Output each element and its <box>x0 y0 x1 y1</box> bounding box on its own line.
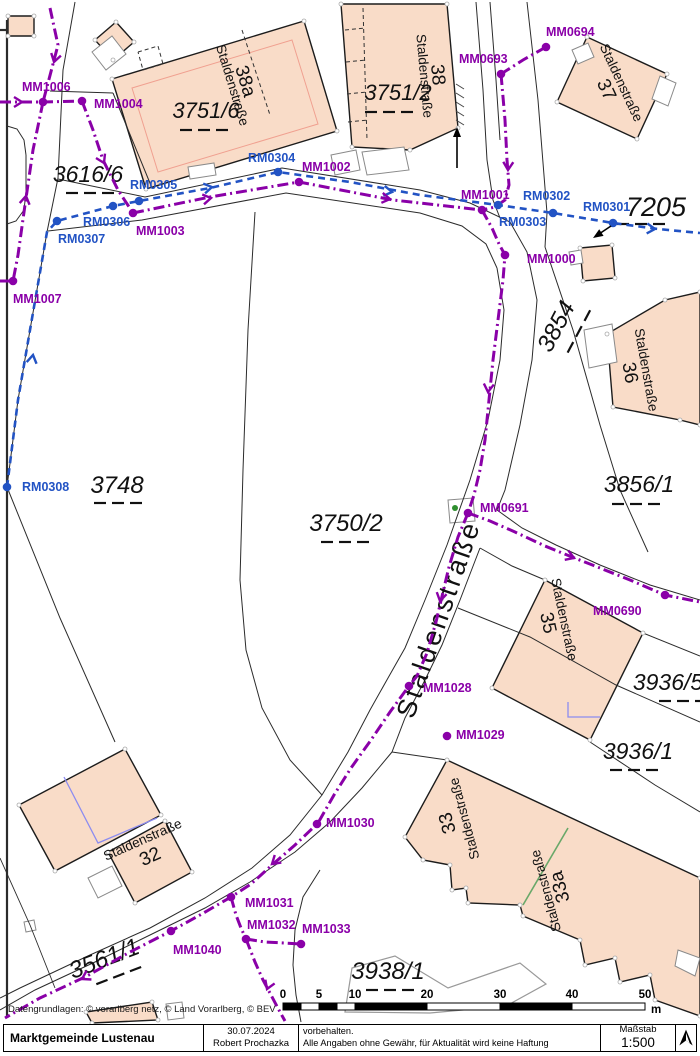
vertex-point <box>613 276 617 280</box>
building-top-corner <box>8 16 34 36</box>
parcel-dash-mark <box>130 967 141 971</box>
parcel-dash-mark <box>576 326 582 337</box>
green-point <box>452 505 458 511</box>
vertex-point <box>114 20 118 24</box>
white-structure <box>88 866 122 898</box>
mm-point <box>242 935 251 944</box>
parcel-number-label: 7205 <box>626 192 687 222</box>
mm-point <box>78 97 87 106</box>
footer-north <box>676 1025 696 1051</box>
parcel-dash-mark <box>96 980 107 984</box>
black-arrow-head <box>591 229 604 241</box>
parcel-dash-mark <box>113 973 124 977</box>
vertex-point <box>450 888 454 892</box>
vertex-point <box>648 973 652 977</box>
direction-arrow-icon <box>483 384 494 393</box>
vertex-point <box>190 870 194 874</box>
direction-arrow-icon <box>27 354 38 364</box>
fence-tick <box>456 93 464 98</box>
mm-point <box>227 893 236 902</box>
data-sources-attribution: Datengrundlagen: © vorarlberg netz, © La… <box>8 1004 276 1015</box>
parcel-boundary-line <box>7 178 58 487</box>
scale-bar-segment <box>337 1003 355 1010</box>
scale-tick-label: 50 <box>639 989 652 1001</box>
vertex-point <box>156 1018 160 1022</box>
vertex-point <box>110 77 114 81</box>
parcel-boundary-line <box>58 168 510 222</box>
rm-point-label: RM0303 <box>499 215 546 229</box>
vertex-point <box>578 246 582 250</box>
vertex-point <box>159 813 163 817</box>
footer-scale: Maßstab 1:500 <box>601 1025 676 1051</box>
mm-point <box>405 682 414 691</box>
mm-point-label: MM1033 <box>302 922 351 936</box>
scale-bar-segment <box>572 1003 645 1010</box>
mm-point-label: MM1000 <box>527 252 576 266</box>
mm-point-label: MM1032 <box>247 918 296 932</box>
parcel-dash-mark <box>568 342 574 353</box>
vertex-point <box>408 148 412 152</box>
vertex-point <box>464 886 468 890</box>
mm-point-label: MM0691 <box>480 501 529 515</box>
parcel-boundary-line <box>643 633 700 656</box>
mm-point <box>501 251 510 260</box>
vertex-point <box>350 145 354 149</box>
vertex-point <box>17 803 21 807</box>
parcel-boundary-line <box>7 487 115 742</box>
rm-point-label: RM0304 <box>248 151 295 165</box>
mm-point-label: MM0693 <box>459 52 508 66</box>
rm-point <box>135 197 144 206</box>
mm-point <box>297 940 306 949</box>
building-number-label: 38 <box>426 63 449 86</box>
north-arrow-icon <box>676 1028 696 1048</box>
vertex-point <box>543 578 547 582</box>
scale-tick-label: 20 <box>421 989 434 1001</box>
vertex-point <box>93 38 97 42</box>
mm-point <box>478 206 487 215</box>
footer-date-author: 30.07.2024 Robert Prochazka <box>204 1025 299 1051</box>
parcel-number-label: 3561/1 <box>65 933 143 985</box>
vertex-point <box>653 998 657 1002</box>
parcel-number-label: 3936/5 <box>633 669 700 695</box>
parcel-number-label: 3936/1 <box>603 738 673 764</box>
mm-traverse-line <box>13 102 43 281</box>
parcel-number-label: 3616/6 <box>53 161 124 187</box>
vertex-point <box>583 963 587 967</box>
mm-point-label: MM1028 <box>423 681 472 695</box>
fence-tick <box>456 84 464 89</box>
vertex-point <box>132 40 136 44</box>
parcel-boundary-line <box>480 548 545 580</box>
rm-point <box>3 483 12 492</box>
scale-bar-segment <box>283 1003 301 1010</box>
parcel-dash-mark <box>585 310 591 321</box>
white-structure <box>362 147 409 175</box>
parcel-boundary-line <box>7 126 26 155</box>
mm-point-label: MM0690 <box>593 604 642 618</box>
disclaimer-line1: Nicht rechtsverbindlicher Ausdruck. Druc… <box>303 1025 600 1038</box>
building-mm1000 <box>580 245 615 281</box>
parcel-number-label: 3938/1 <box>351 958 424 985</box>
vertex-point <box>663 298 667 302</box>
vertex-point <box>610 243 614 247</box>
municipality-label: Marktgemeinde Lustenau <box>10 1031 203 1045</box>
print-date: 30.07.2024 <box>204 1026 298 1038</box>
vertex-point <box>578 938 582 942</box>
parcel-number-label: 3750/2 <box>309 510 382 537</box>
vertex-point <box>588 738 592 742</box>
vertex-point <box>445 758 449 762</box>
rm-point-label: RM0308 <box>22 480 69 494</box>
vertex-point <box>6 34 10 38</box>
vertex-point <box>421 858 425 862</box>
parcel-boundary-line <box>392 752 447 760</box>
vertex-point <box>133 901 137 905</box>
scale-tick-label: 10 <box>349 989 362 1001</box>
vertex-point <box>448 863 452 867</box>
parcel-number-label: 3748 <box>90 472 144 499</box>
scale-bar-segment <box>427 1003 500 1010</box>
vertex-point <box>111 58 115 62</box>
vertex-point <box>445 2 449 6</box>
parcel-number-label: 3856/1 <box>604 471 674 497</box>
scale-tick-label: 30 <box>494 989 507 1001</box>
mm-traverse-line <box>246 939 301 944</box>
vertex-point <box>123 747 127 751</box>
white-structure <box>584 324 617 368</box>
mm-point-label: MM1030 <box>326 816 375 830</box>
mm-point <box>129 209 138 218</box>
vertex-point <box>403 835 407 839</box>
mm-point-label: MM1002 <box>302 160 351 174</box>
rm-point <box>53 217 62 226</box>
rm-point-label: RM0301 <box>583 200 630 214</box>
mm-point-label: MM1040 <box>173 943 222 957</box>
mm-point <box>9 277 18 286</box>
disclaimer-line2: Alle Angaben ohne Gewähr, für Aktualität… <box>303 1038 600 1051</box>
building-number-label: 35 <box>535 610 560 635</box>
vertex-point <box>581 279 585 283</box>
rm-point <box>109 202 118 211</box>
rm-point-label: RM0302 <box>523 189 570 203</box>
rm-point <box>274 168 283 177</box>
mm-point-label: MM1007 <box>13 292 62 306</box>
vertex-point <box>518 903 522 907</box>
vertex-point <box>611 405 615 409</box>
vertex-point <box>641 631 645 635</box>
mm-point-label: MM0694 <box>546 25 595 39</box>
vertex-point <box>635 137 639 141</box>
vertex-point <box>613 956 617 960</box>
vertex-point <box>618 980 622 984</box>
scale-bar-segment <box>355 1003 427 1010</box>
mm-traverse-line <box>231 897 246 939</box>
fence-tick <box>456 102 464 107</box>
mm-point-label: MM1029 <box>456 728 505 742</box>
parcel-boundary-line <box>476 2 500 218</box>
rm-point-label: RM0306 <box>83 215 130 229</box>
scale-bar-segment <box>301 1003 319 1010</box>
rm-point-label: RM0307 <box>58 232 105 246</box>
mm-point <box>464 509 473 518</box>
vertex-point <box>32 14 36 18</box>
rm-point-label: RM0305 <box>130 178 177 192</box>
mm-point-label: MM1001 <box>461 188 510 202</box>
scale-value: 1:500 <box>601 1036 675 1051</box>
vertex-point <box>6 14 10 18</box>
mm-point <box>661 591 670 600</box>
scale-tick-label: 0 <box>280 989 286 1001</box>
mm-point-label: MM1031 <box>245 896 294 910</box>
mm-traverse-line <box>501 47 546 74</box>
vertex-point <box>678 418 682 422</box>
mm-point-label: MM1003 <box>136 224 185 238</box>
vertex-point <box>555 100 559 104</box>
parcel-boundary-line <box>497 510 700 600</box>
footer-table: Marktgemeinde Lustenau 30.07.2024 Robert… <box>3 1024 697 1052</box>
vertex-point <box>466 901 470 905</box>
footer-disclaimer: Nicht rechtsverbindlicher Ausdruck. Druc… <box>299 1025 601 1051</box>
scale-unit-label: m <box>651 1004 661 1016</box>
vertex-point <box>339 2 343 6</box>
mm-traverse-line <box>5 513 468 1018</box>
mm-point <box>295 178 304 187</box>
mm-point <box>542 43 551 52</box>
parcel-number-label: 3854 <box>532 297 581 357</box>
mm-point <box>167 927 176 936</box>
vertex-point <box>665 72 669 76</box>
vertex-point <box>53 869 57 873</box>
mm-point <box>443 732 452 741</box>
scale-tick-label: 5 <box>316 989 323 1001</box>
mm-point <box>39 98 48 107</box>
vertex-point <box>605 332 609 336</box>
scale-bar-segment <box>500 1003 572 1010</box>
building-number-label: 36 <box>617 361 641 385</box>
parcel-boundary-line <box>240 212 322 795</box>
mm-point-label: MM1006 <box>22 80 71 94</box>
vertex-point <box>32 34 36 38</box>
map-canvas: 3751/63751/23616/67205385437483750/23856… <box>0 0 700 1024</box>
mm-point <box>497 70 506 79</box>
scale-tick-label: 40 <box>566 989 579 1001</box>
cadastral-map-page: 3751/63751/23616/67205385437483750/23856… <box>0 0 700 1056</box>
vertex-point <box>335 129 339 133</box>
rm-point <box>549 209 558 218</box>
vertex-point <box>302 19 306 23</box>
vertex-point <box>521 914 525 918</box>
mm-point-label: MM1004 <box>94 97 143 111</box>
mm-point <box>313 820 322 829</box>
author-name: Robert Prochazka <box>204 1038 298 1050</box>
parcel-boundary-line <box>527 2 547 213</box>
footer-municipality: Marktgemeinde Lustenau <box>4 1025 204 1051</box>
vertex-point <box>490 686 494 690</box>
scale-bar-segment <box>319 1003 337 1010</box>
